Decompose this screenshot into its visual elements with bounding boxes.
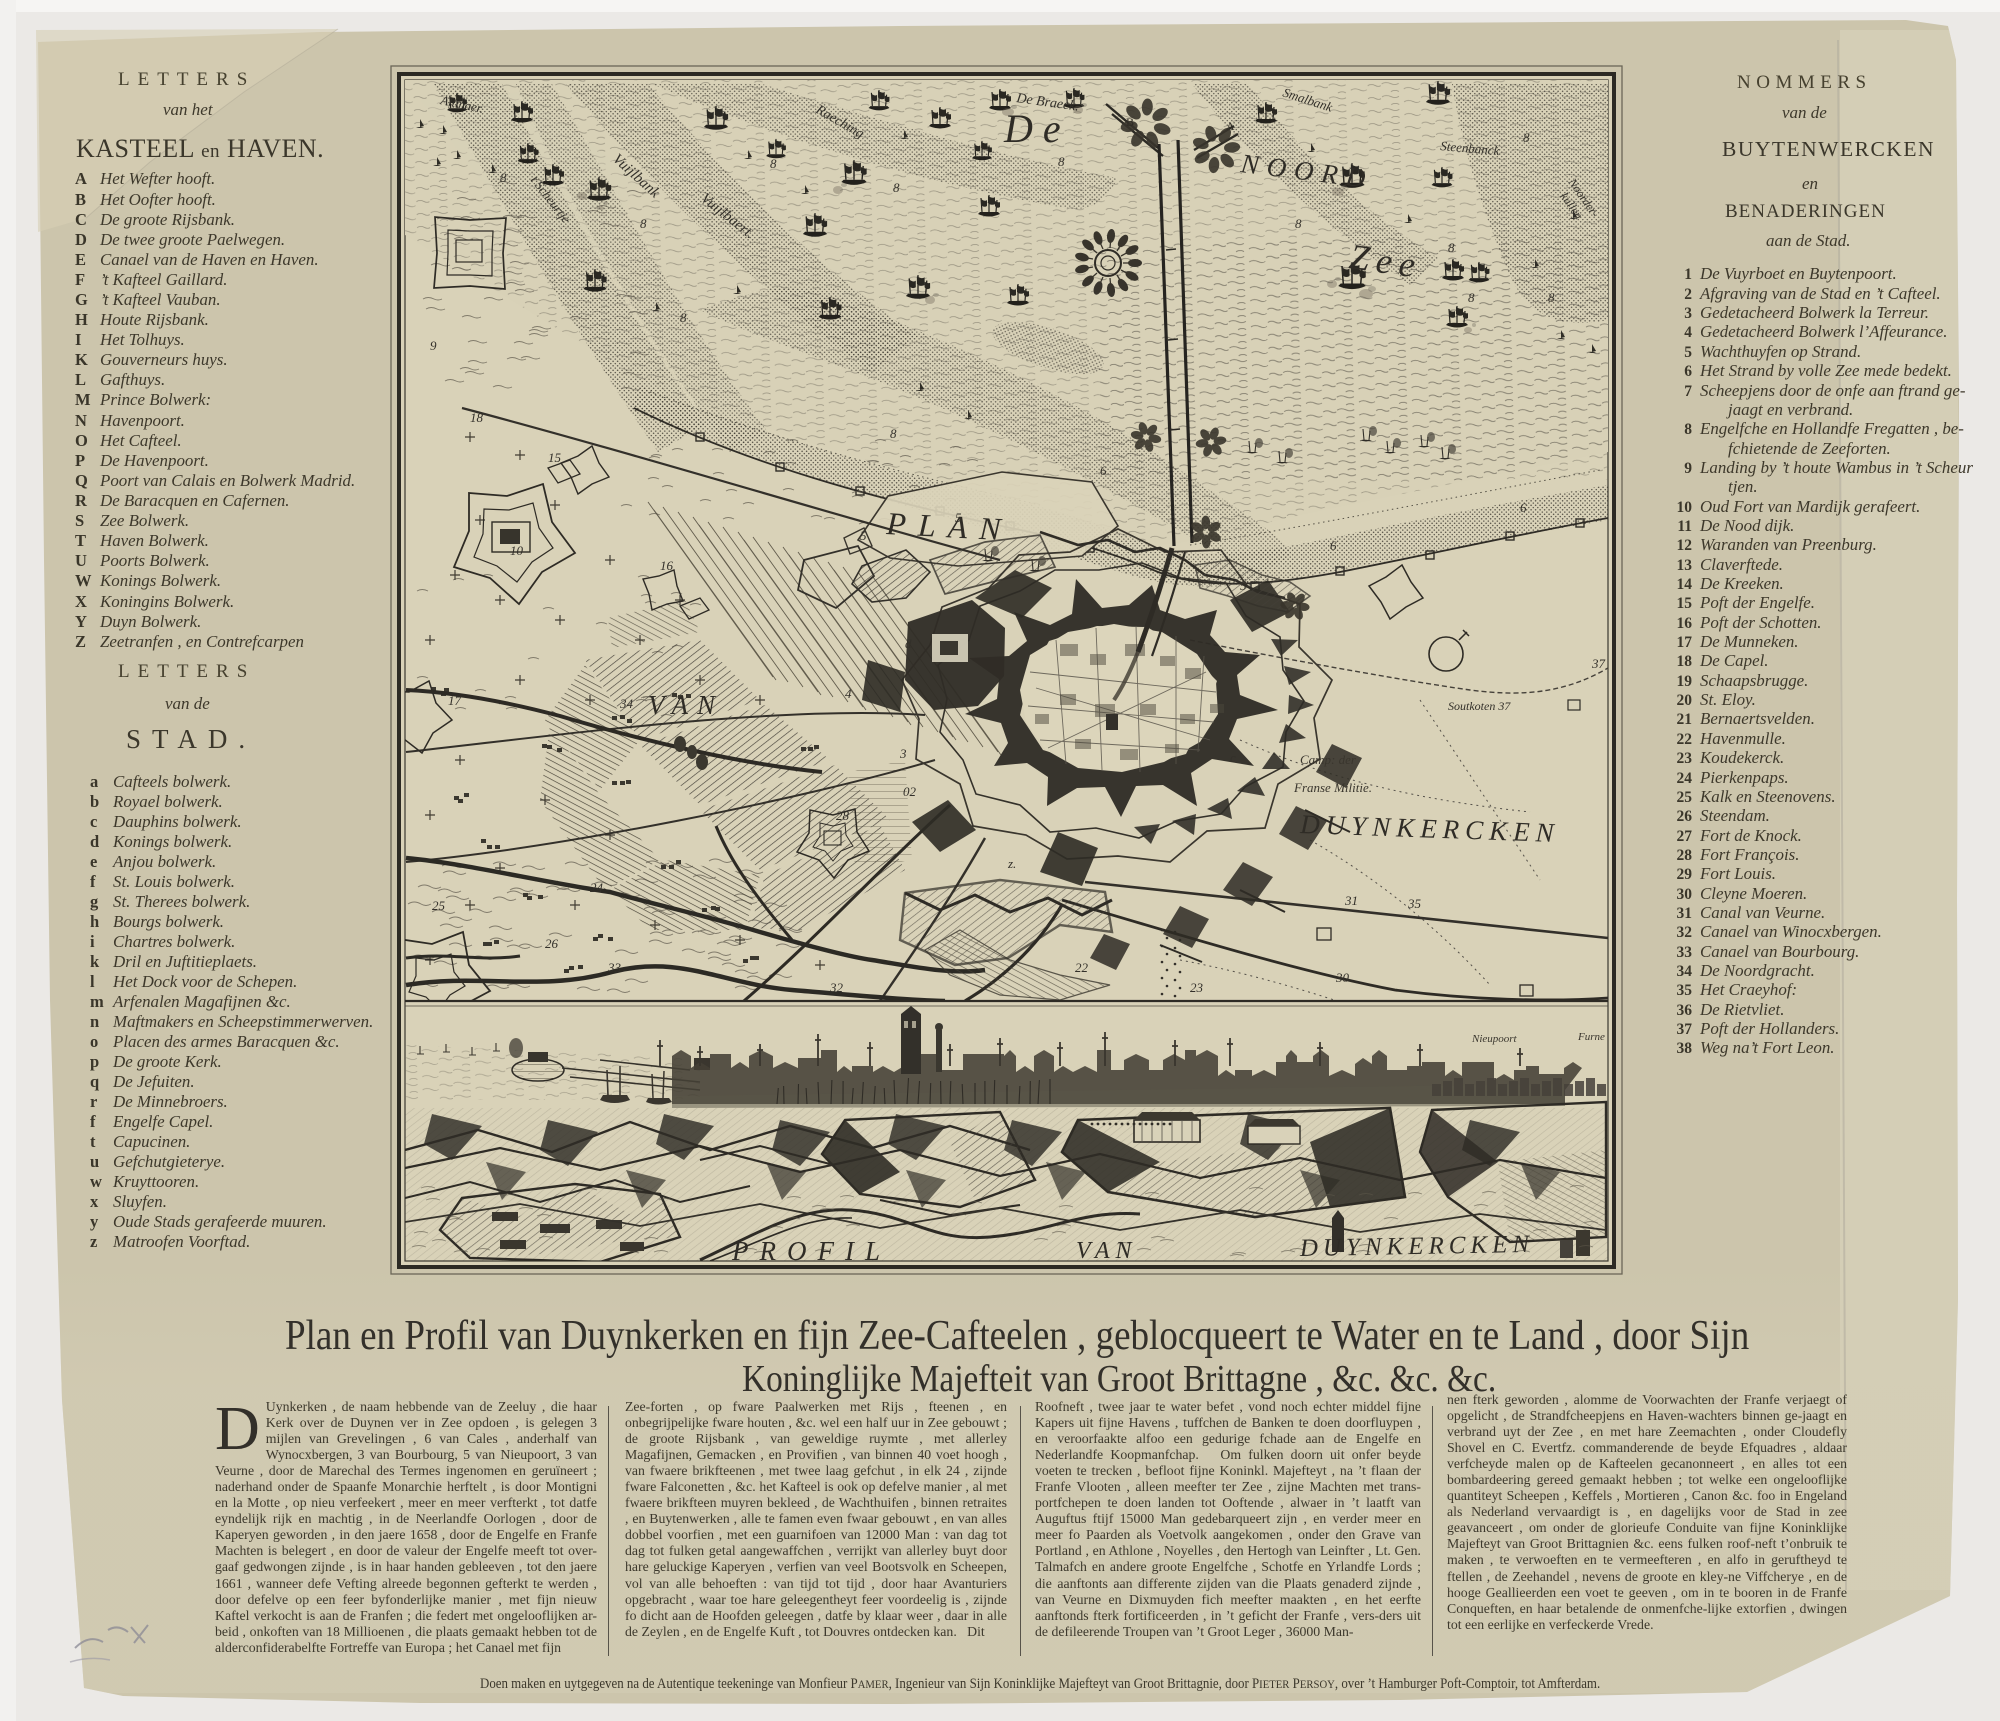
svg-text:8: 8 bbox=[890, 426, 897, 441]
svg-text:25: 25 bbox=[432, 898, 446, 913]
svg-text:8: 8 bbox=[1523, 130, 1530, 145]
svg-text:8: 8 bbox=[500, 170, 507, 185]
svg-text:8: 8 bbox=[1448, 240, 1455, 255]
svg-text:8: 8 bbox=[770, 156, 777, 171]
svg-text:6: 6 bbox=[1330, 538, 1337, 553]
svg-text:8: 8 bbox=[640, 216, 647, 231]
svg-text:8: 8 bbox=[680, 310, 687, 325]
svg-text:B: B bbox=[1126, 115, 1134, 129]
svg-text:5: 5 bbox=[1240, 578, 1247, 593]
svg-text:PLAN: PLAN bbox=[885, 505, 1014, 548]
svg-text:6: 6 bbox=[1520, 500, 1527, 515]
svg-text:4: 4 bbox=[845, 686, 852, 701]
svg-text:32: 32 bbox=[829, 980, 844, 995]
svg-text:30: 30 bbox=[1335, 970, 1350, 985]
svg-text:8: 8 bbox=[1548, 290, 1555, 305]
svg-text:35: 35 bbox=[1407, 896, 1422, 911]
svg-text:17: 17 bbox=[448, 693, 462, 708]
svg-text:VAN: VAN bbox=[1076, 1238, 1138, 1264]
svg-text:37: 37 bbox=[1591, 656, 1606, 671]
svg-text:Soutkoten 37: Soutkoten 37 bbox=[1448, 699, 1511, 713]
svg-text:26: 26 bbox=[545, 936, 559, 951]
svg-text:31: 31 bbox=[1344, 893, 1358, 908]
svg-text:16: 16 bbox=[660, 558, 674, 573]
svg-text:5: 5 bbox=[955, 510, 962, 525]
svg-text:De: De bbox=[1003, 106, 1071, 151]
svg-text:DUYNKERCKEN: DUYNKERCKEN bbox=[1299, 1231, 1535, 1262]
svg-text:9: 9 bbox=[430, 338, 437, 353]
svg-text:z.: z. bbox=[1007, 856, 1016, 871]
svg-text:Franse Militie.: Franse Militie. bbox=[1293, 780, 1372, 795]
svg-text:34: 34 bbox=[619, 696, 634, 711]
svg-text:18: 18 bbox=[470, 410, 484, 425]
svg-text:Camp: der: Camp: der bbox=[1300, 752, 1357, 767]
svg-text:02: 02 bbox=[903, 784, 917, 799]
svg-text:8: 8 bbox=[1058, 154, 1065, 169]
svg-text:c: c bbox=[1230, 750, 1236, 765]
svg-text:d: d bbox=[905, 636, 912, 651]
svg-text:24: 24 bbox=[590, 880, 604, 895]
svg-text:22: 22 bbox=[1075, 960, 1089, 975]
svg-text:3: 3 bbox=[899, 746, 907, 761]
svg-text:Nieupoort: Nieupoort bbox=[1471, 1033, 1518, 1045]
svg-text:10: 10 bbox=[510, 543, 524, 558]
svg-text:8: 8 bbox=[1468, 290, 1475, 305]
svg-text:VAN: VAN bbox=[648, 690, 724, 720]
svg-text:8: 8 bbox=[1295, 216, 1302, 231]
svg-text:8: 8 bbox=[893, 180, 900, 195]
svg-text:23: 23 bbox=[1190, 980, 1204, 995]
svg-text:28: 28 bbox=[836, 808, 850, 823]
svg-text:6: 6 bbox=[1100, 463, 1107, 478]
svg-text:5: 5 bbox=[860, 528, 867, 543]
svg-text:33: 33 bbox=[607, 960, 622, 975]
svg-text:A: A bbox=[1226, 119, 1235, 133]
svg-text:Furne: Furne bbox=[1577, 1031, 1605, 1043]
svg-text:15: 15 bbox=[548, 450, 562, 465]
